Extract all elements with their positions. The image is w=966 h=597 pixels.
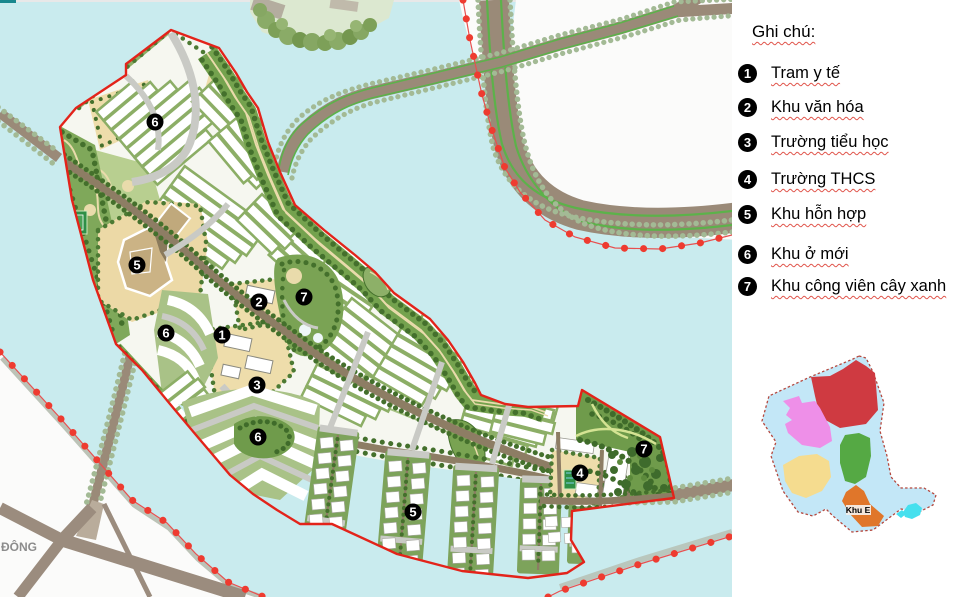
svg-text:6: 6 xyxy=(162,326,169,341)
svg-text:1: 1 xyxy=(218,328,225,343)
svg-text:5: 5 xyxy=(133,258,140,273)
svg-text:7: 7 xyxy=(640,442,647,457)
svg-text:4: 4 xyxy=(576,466,584,481)
svg-text:2: 2 xyxy=(255,295,262,310)
svg-text:5: 5 xyxy=(409,505,416,520)
svg-text:7: 7 xyxy=(300,290,307,305)
svg-text:3: 3 xyxy=(253,378,260,393)
svg-text:6: 6 xyxy=(254,430,261,445)
svg-text:6: 6 xyxy=(151,115,158,130)
svg-text:ĐÔNG: ĐÔNG xyxy=(1,539,37,554)
